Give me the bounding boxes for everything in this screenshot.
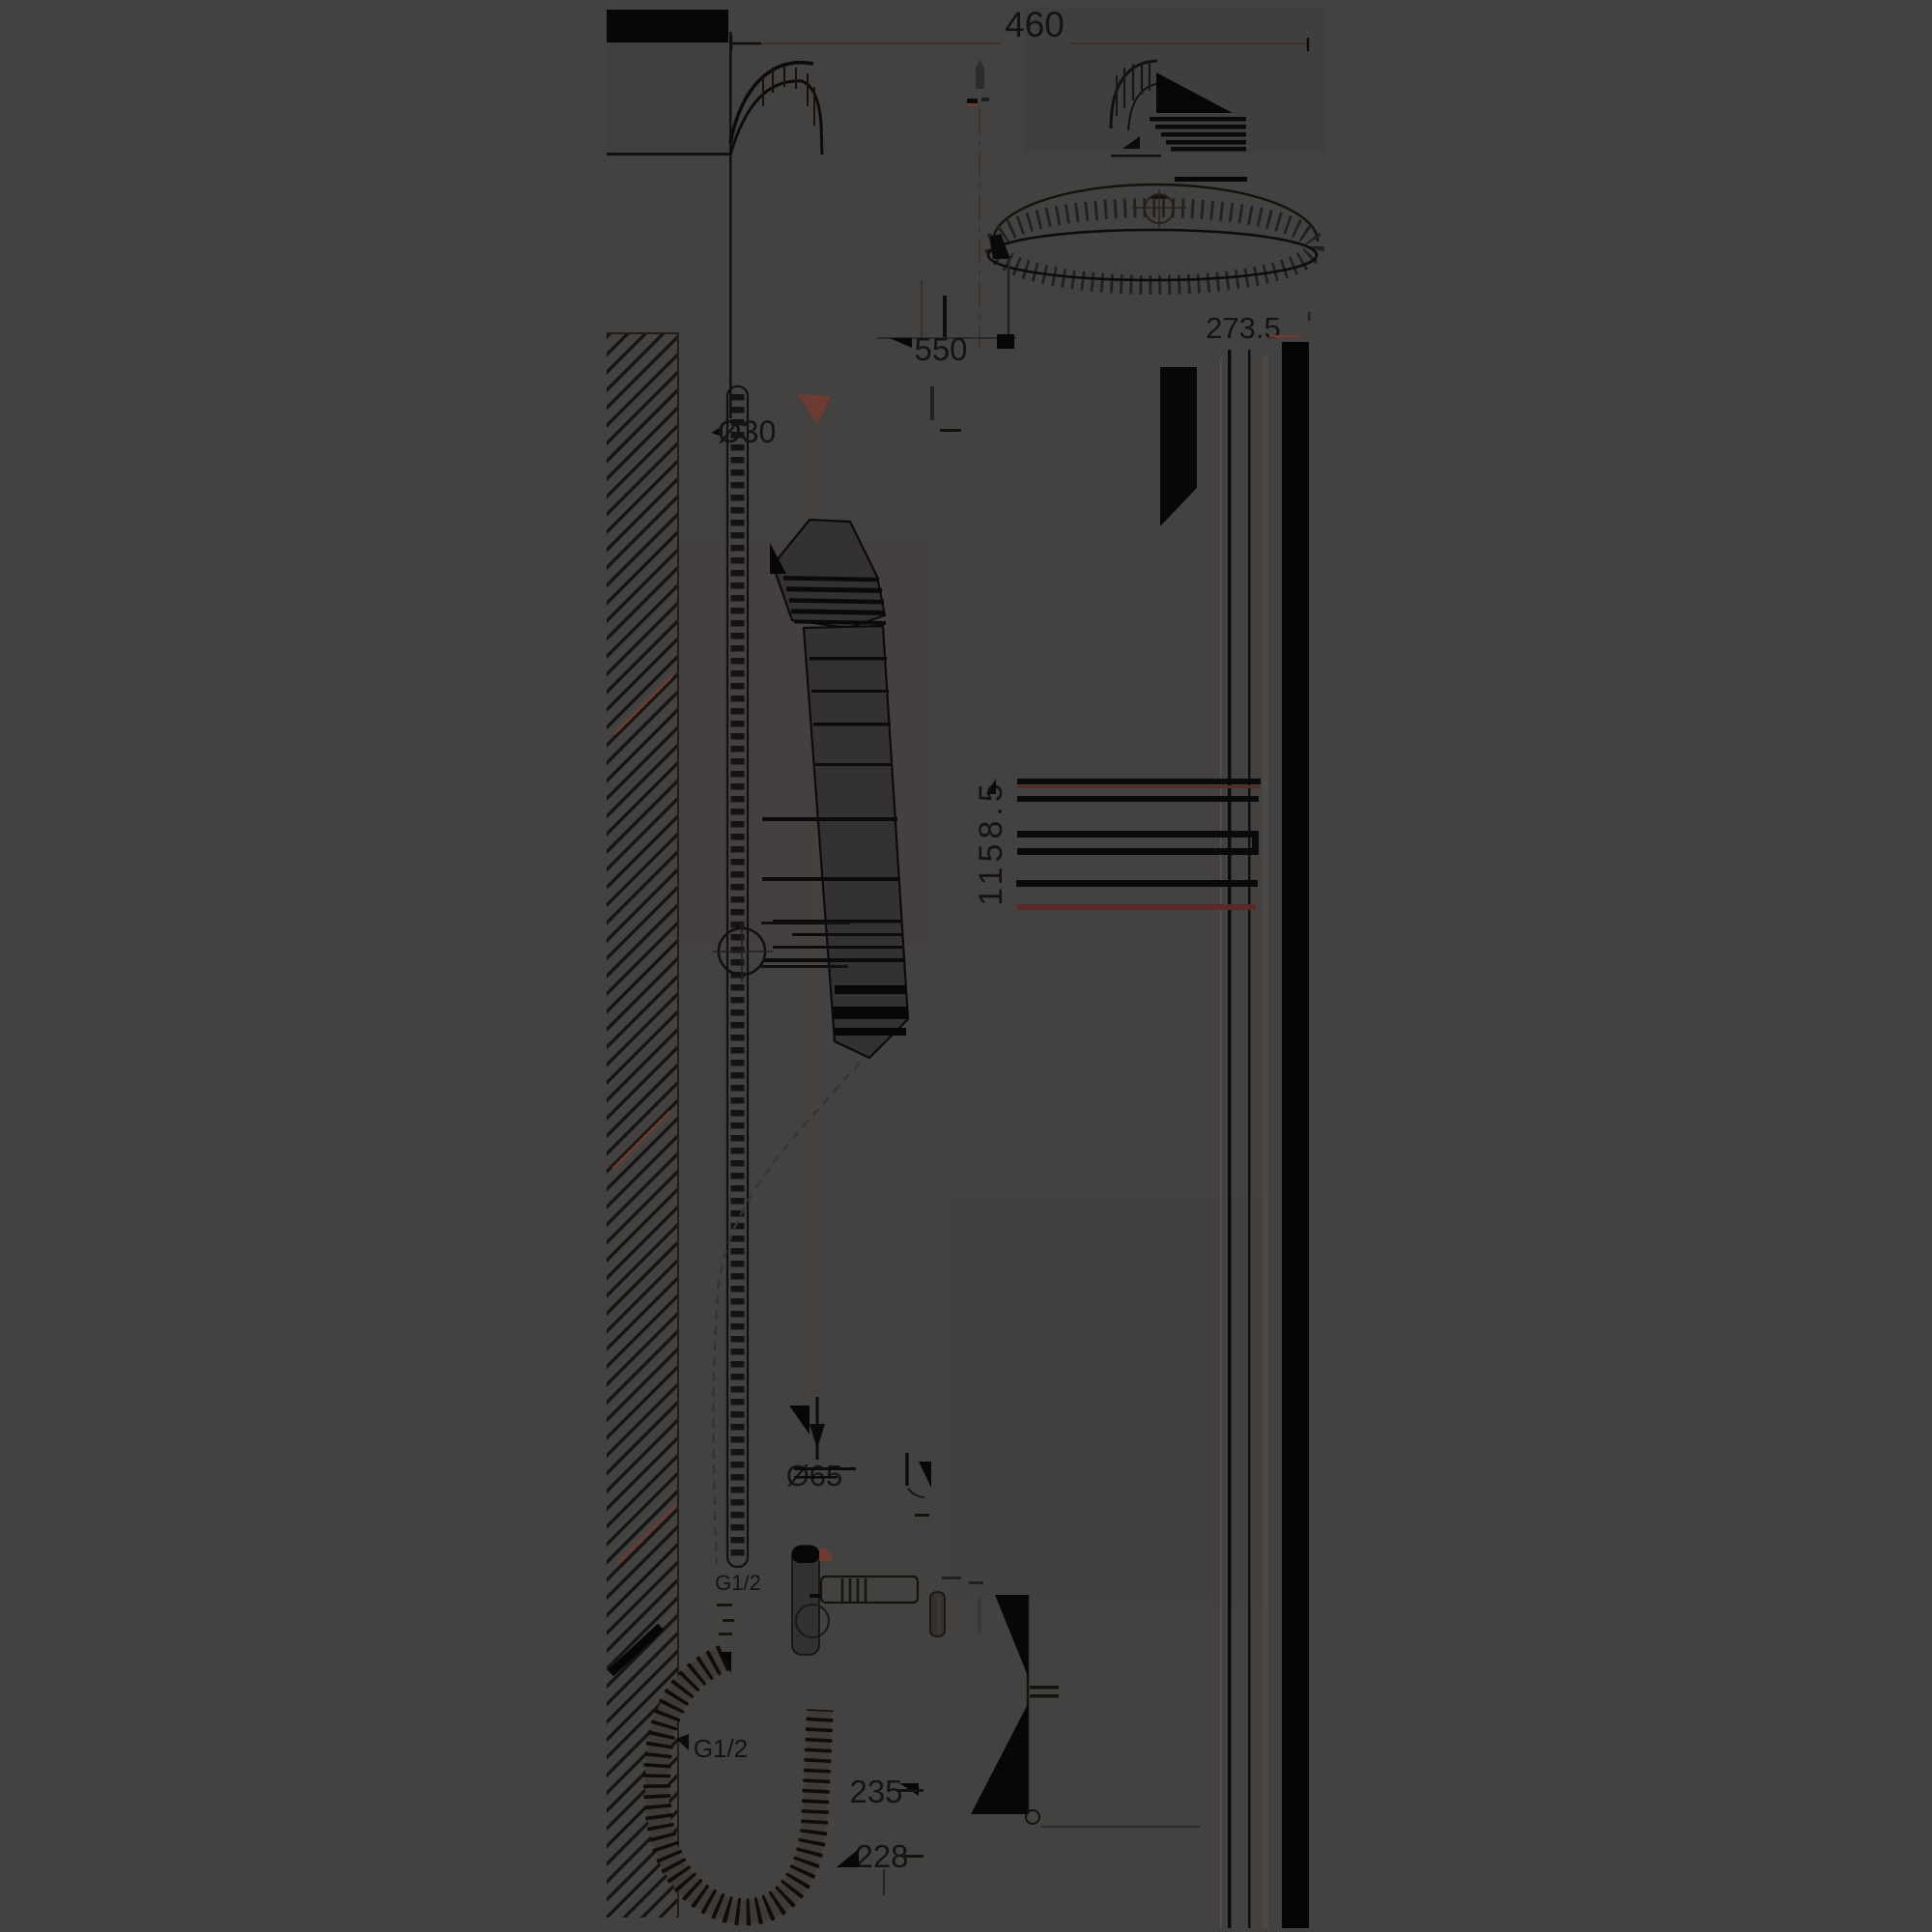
svg-text:273.5: 273.5: [1206, 311, 1281, 345]
svg-text:1158.5: 1158.5: [973, 779, 1009, 905]
svg-text:228: 228: [855, 1838, 908, 1874]
svg-text:235: 235: [849, 1774, 902, 1809]
svg-text:G1/2: G1/2: [715, 1571, 761, 1595]
svg-text:460: 460: [1005, 5, 1065, 44]
svg-text:G1/2: G1/2: [694, 1734, 748, 1763]
svg-text:Ø65: Ø65: [786, 1459, 843, 1492]
svg-text:Ø30: Ø30: [718, 414, 776, 449]
svg-text:550: 550: [914, 331, 967, 367]
